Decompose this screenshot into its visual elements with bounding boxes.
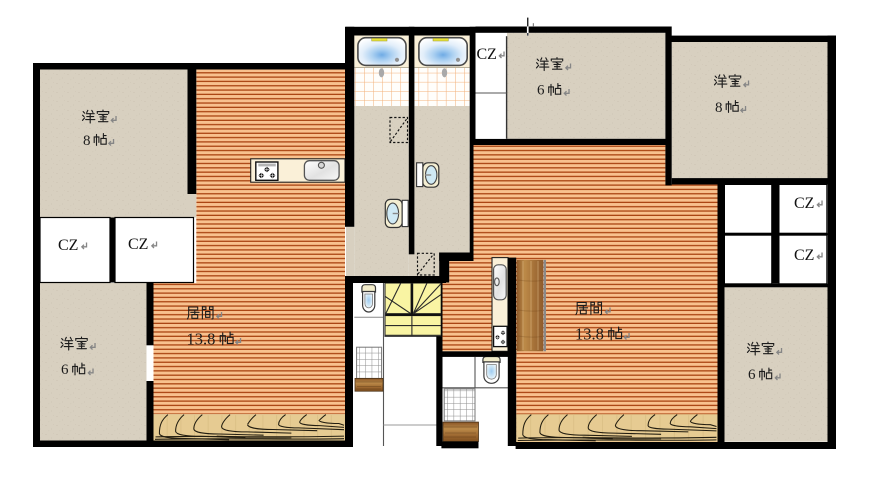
svg-text:8: 8 xyxy=(715,100,723,116)
svg-text:6: 6 xyxy=(61,362,69,378)
svg-text:13.8: 13.8 xyxy=(187,330,216,349)
svg-text:CZ: CZ xyxy=(58,237,78,254)
svg-text:CZ: CZ xyxy=(477,46,497,63)
svg-text:6: 6 xyxy=(537,83,545,99)
svg-text:CZ: CZ xyxy=(128,236,148,253)
svg-text:CZ: CZ xyxy=(794,247,814,264)
svg-text:8: 8 xyxy=(83,133,91,149)
svg-text:6: 6 xyxy=(748,367,756,383)
svg-text:13.8: 13.8 xyxy=(575,325,604,344)
svg-text:CZ: CZ xyxy=(794,195,814,212)
